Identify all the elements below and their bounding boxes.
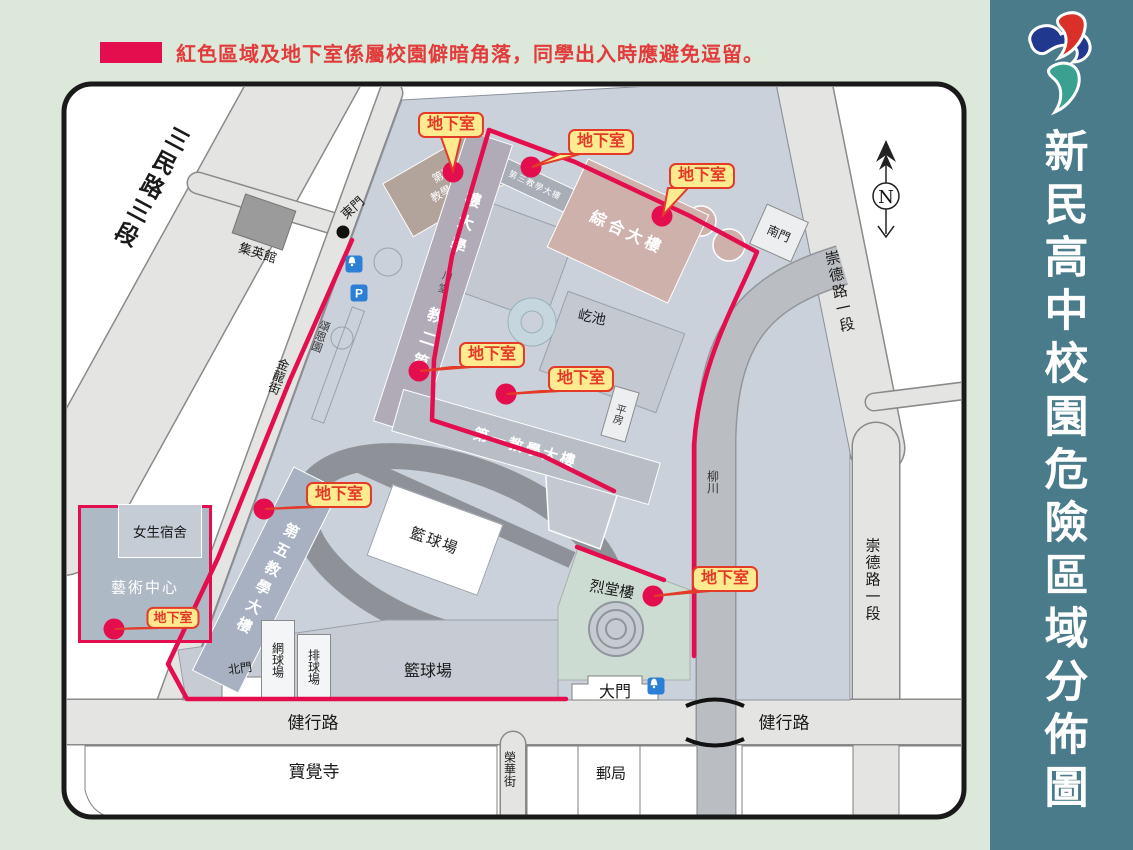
road-label-jianxing-west: 健行路 xyxy=(288,709,339,734)
legend-text: 紅色區域及地下室係屬校園僻暗角落，同學出入時應避免逗留。 xyxy=(176,38,764,67)
school-logo-icon xyxy=(1017,8,1105,120)
legend-red-swatch xyxy=(100,42,162,63)
road-label-chongde-lower: 崇德路一段 xyxy=(862,538,883,623)
bell-icon xyxy=(648,678,665,695)
basement-warning-label: 地下室 xyxy=(306,482,372,508)
post-office-label: 郵局 xyxy=(596,763,626,784)
basement-warning-label: 地下室 xyxy=(669,163,735,189)
art-center-label: 藝術中心 xyxy=(111,577,179,598)
bell-glyph xyxy=(346,256,359,269)
river-label-liuchuan: 柳川 xyxy=(705,470,722,494)
parking-icon: P xyxy=(351,285,368,302)
basement-warning-label: 地下室 xyxy=(548,366,614,392)
logo-teal-swirl xyxy=(1049,63,1080,112)
sidebar-title-wrap: 新民高中校園危險區域分佈圖 xyxy=(990,128,1133,842)
basement-warning-label: 地下室 xyxy=(459,342,525,368)
baojue-temple-label: 寶覺寺 xyxy=(289,758,340,783)
basement-dot xyxy=(521,157,542,178)
danger-line-west-boundary xyxy=(168,240,566,699)
north-gate-label: 北門 xyxy=(227,658,253,678)
sidebar: 新民高中校園危險區域分佈圖 xyxy=(990,0,1133,850)
danger-line-lietang xyxy=(577,547,664,580)
basketball-court-south-label: 籃球場 xyxy=(404,657,452,681)
bell-glyph xyxy=(648,678,661,691)
basement-warning-label: 地下室 xyxy=(418,112,484,138)
basement-warning-label: 地下室 xyxy=(568,129,634,155)
basement-warning-label: 地下室 xyxy=(146,607,199,629)
road-label-jianxing-east: 健行路 xyxy=(759,709,810,734)
bell-icon xyxy=(346,256,363,273)
basement-dots xyxy=(104,157,673,640)
parking-icon-letter: P xyxy=(355,286,363,300)
east-gate-dot xyxy=(337,226,350,239)
basement-pointers xyxy=(115,137,710,629)
page-title: 新民高中校園危險區域分佈圖 xyxy=(1040,128,1084,842)
basement-warning-label: 地下室 xyxy=(692,566,758,592)
road-label-ronghua: 榮華街 xyxy=(502,751,519,787)
main-gate-label: 大門 xyxy=(599,678,631,702)
campus-danger-map-page: N 第四教學大樓 第三教學大樓 綜合大樓 樓大學 川堂 教二第 第一教學大樓 平… xyxy=(0,0,1133,850)
